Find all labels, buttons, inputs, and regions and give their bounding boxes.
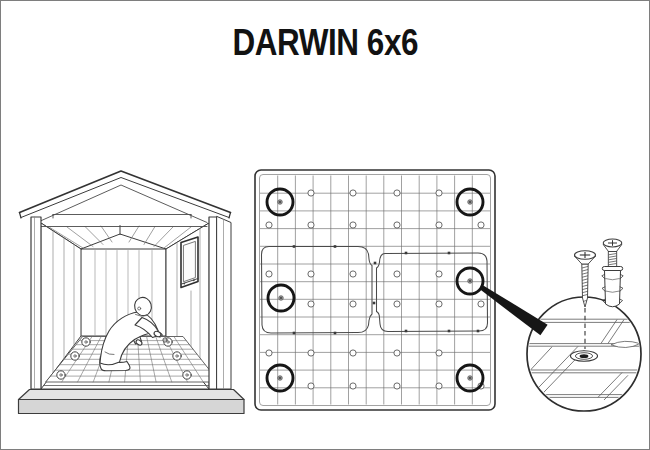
floor-hole: [308, 301, 314, 307]
shed-floor-anchor: [82, 338, 90, 346]
seam-tick: [405, 330, 408, 333]
shed-illustration: [19, 171, 245, 414]
floor-hole: [394, 350, 400, 356]
anchor-screw-center: [469, 377, 471, 379]
floor-hole: [266, 350, 272, 356]
shed-floor-anchor: [57, 371, 65, 379]
floor-hole: [308, 190, 314, 196]
floor-hole: [266, 222, 272, 228]
floor-hole: [436, 222, 442, 228]
seam-tick: [374, 262, 377, 265]
seam-tick: [293, 332, 296, 335]
anchor-screw-center: [280, 297, 282, 299]
floor-hole: [350, 350, 356, 356]
floor-hole: [394, 271, 400, 277]
floor-hole: [436, 301, 442, 307]
base-platform: [19, 390, 245, 414]
floor-hole: [478, 301, 484, 307]
floor-hole: [350, 271, 356, 277]
floor-top-view: [255, 170, 495, 410]
anchor-hole: [571, 351, 598, 361]
seam-tick: [293, 245, 296, 248]
floor-hole: [394, 301, 400, 307]
floor-hole: [350, 383, 356, 389]
seam-tick: [448, 330, 451, 333]
seam-tick: [334, 332, 337, 335]
seam-tick: [373, 302, 376, 305]
floor-hole: [350, 222, 356, 228]
floor-hole: [394, 383, 400, 389]
floor-hole: [436, 350, 442, 356]
anchor-screw-center: [279, 201, 281, 203]
floor-hole: [436, 190, 442, 196]
floor-hole: [394, 190, 400, 196]
anchor-screw-center: [279, 377, 281, 379]
shed-floor-edge: [41, 386, 223, 390]
seam-tick: [405, 252, 408, 255]
floor-hole: [350, 301, 356, 307]
floor-hole: [308, 222, 314, 228]
floor-hole: [436, 271, 442, 277]
floor-hole: [266, 271, 272, 277]
anchor-screw-center: [469, 201, 471, 203]
floor-hole: [308, 350, 314, 356]
instruction-diagram: [1, 1, 650, 450]
seam-tick: [477, 330, 480, 333]
hardware-detail: [480, 239, 643, 411]
shed-window: [181, 237, 198, 288]
floor-hole: [436, 383, 442, 389]
shed-floor-anchor: [173, 352, 181, 360]
shed-floor-anchor: [183, 371, 191, 379]
shed-floor-anchor: [71, 352, 79, 360]
seam-tick: [334, 245, 337, 248]
floor-hole: [308, 271, 314, 277]
seam-tick: [448, 252, 451, 255]
shed-roof: [20, 171, 231, 227]
floor-hole: [308, 383, 314, 389]
floor-hole: [350, 190, 356, 196]
manual-page: DARWIN 6x6: [0, 0, 650, 450]
anchor-screw-center: [469, 280, 471, 282]
floor-hole: [478, 222, 484, 228]
floor-hole: [394, 222, 400, 228]
wall-plug-icon: [602, 239, 623, 307]
